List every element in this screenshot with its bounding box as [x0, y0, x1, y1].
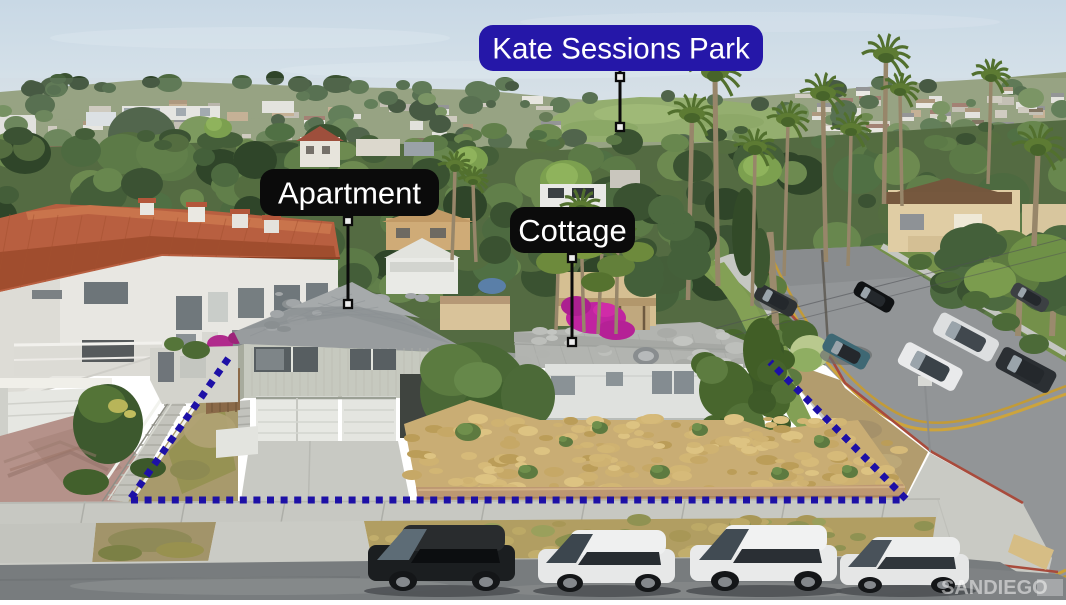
svg-text:Apartment: Apartment — [278, 175, 421, 210]
svg-text:Cottage: Cottage — [518, 213, 627, 248]
svg-text:Kate Sessions Park: Kate Sessions Park — [492, 32, 750, 65]
svg-text:SANDIEGO: SANDIEGO — [941, 577, 1048, 599]
